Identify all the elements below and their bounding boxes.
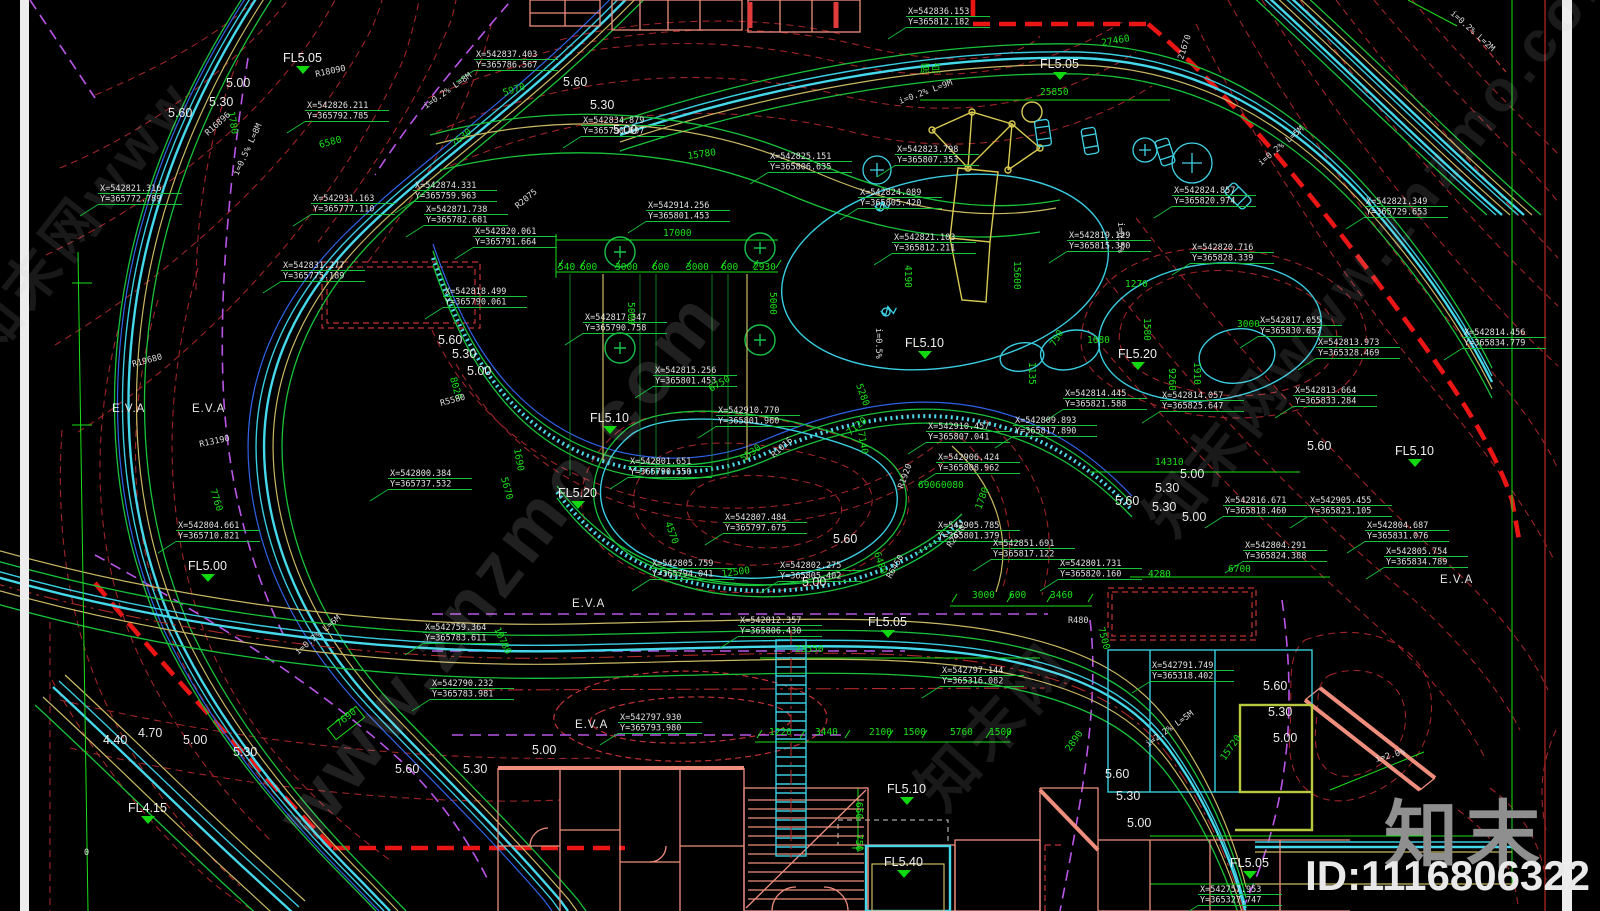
left-white-border — [20, 0, 29, 911]
coordinate-callout: X=542814.445Y=365821.588 — [1065, 389, 1126, 410]
elevation-label: 4.70 — [138, 726, 162, 740]
coordinate-callout: X=542825.151Y=365806.635 — [770, 152, 831, 173]
misc-label: 原点 — [920, 63, 941, 75]
dimension-text: 600 — [721, 262, 738, 273]
dimension-text: 5000 — [625, 302, 636, 325]
coordinate-callout: X=542820.061Y=365791.664 — [475, 227, 536, 248]
radius-slope-label: 21670 — [1176, 33, 1193, 60]
dimension-text: 27460 — [1101, 33, 1131, 49]
coordinate-callout: X=542759.364Y=365783.611 — [425, 623, 486, 644]
coordinate-callout: X=542914.256Y=365801.453 — [648, 201, 709, 222]
dimension-text: 3460 — [1050, 590, 1073, 601]
coordinate-callout: X=542813.664Y=365833.284 — [1295, 386, 1356, 407]
elevation-label: 5.30 — [463, 762, 487, 776]
dimension-text: 600 — [652, 262, 669, 273]
eva-label: E.V.A — [112, 403, 145, 415]
coordinate-callout: X=542816.671Y=365818.460 — [1225, 496, 1286, 517]
fl-triangle-marker — [881, 630, 895, 638]
coordinate-callout: X=542910.770Y=365801.960 — [718, 406, 779, 427]
fl-triangle-marker — [1408, 459, 1422, 467]
right-white-border — [1562, 0, 1572, 911]
dimension-text: 5000 — [767, 292, 778, 315]
coordinate-callout: X=542813.973Y=365328.469 — [1318, 338, 1379, 359]
eva-label: E.V.A — [572, 598, 605, 610]
coordinate-callout: X=542804.687Y=365831.076 — [1367, 521, 1428, 542]
coordinate-callout: X=542821.316Y=365772.789 — [100, 184, 161, 205]
coordinate-callout: X=542821.103Y=365812.211 — [894, 233, 955, 254]
dimension-text: 1680 — [1087, 335, 1110, 346]
elevation-label: 5.00 — [1127, 816, 1151, 830]
fl-triangle-marker — [201, 574, 215, 582]
coordinate-callout: X=542800.384Y=365737.532 — [390, 469, 451, 490]
coordinate-callout: X=542814.057Y=365825.647 — [1162, 391, 1223, 412]
dimension-text: 2100 — [869, 727, 892, 738]
elevation-label: 5.00 — [802, 575, 826, 589]
elevation-label: 5.00 — [613, 123, 637, 137]
coordinate-callout: X=542831.277Y=365775.189 — [283, 261, 344, 282]
coordinate-callout: X=542820.716Y=365828.339 — [1192, 243, 1253, 264]
spring-rider — [880, 305, 898, 317]
eva-label: E.V.A — [192, 403, 225, 415]
dimension-text: 1690 — [511, 448, 526, 473]
elevation-label: 5.30 — [1116, 789, 1140, 803]
elevation-label: 5.00 — [1180, 467, 1204, 481]
dimension-text: 15780 — [687, 147, 717, 162]
eva-label: E.V.A — [1440, 574, 1473, 586]
dimension-text: 750 — [853, 834, 864, 851]
radius-slope-label: R18090 — [315, 64, 347, 80]
dimension-text: 2890 — [1063, 728, 1085, 753]
misc-label: 0 — [84, 848, 89, 858]
watermark-layer: www.znzmo.com知末网www.znzmo.com知末网知末网www — [0, 0, 1600, 855]
site-watermark-id: ID:1116806322 — [1305, 852, 1590, 900]
fl-level-label: FL5.00 — [188, 559, 227, 573]
elevation-label: 5.60 — [563, 75, 587, 89]
elevation-label: 5.00 — [226, 76, 250, 90]
fl-triangle-marker — [918, 351, 932, 359]
fl-triangle-marker — [1131, 362, 1145, 370]
dimension-text: 3000 — [615, 262, 638, 273]
radius-slope-label: R5580 — [439, 393, 466, 409]
coordinate-callout: X=542851.691Y=365817.122 — [993, 539, 1054, 560]
fl-level-label: FL5.05 — [1040, 57, 1079, 71]
coordinate-callout: X=542817.347Y=365790.758 — [585, 313, 646, 334]
fl-triangle-marker — [900, 797, 914, 805]
elevation-label: 5.60 — [438, 333, 462, 347]
dimension-text: 7500 — [1095, 626, 1112, 651]
coordinate-callout: X=542826.211Y=365792.785 — [307, 101, 368, 122]
coordinate-callout: X=542757.953Y=365327.747 — [1200, 885, 1261, 906]
coordinate-callout: X=542821.349Y=365729.653 — [1366, 197, 1427, 218]
elevation-label: 5.30 — [1268, 705, 1292, 719]
coordinate-callout: X=542814.456Y=365834.779 — [1464, 328, 1525, 349]
elevation-label: 5.30 — [1155, 481, 1179, 495]
dimension-text: 2930 — [753, 262, 776, 273]
fl-level-label: FL4.15 — [128, 801, 167, 815]
coordinate-callout: X=542837.403Y=365786.567 — [476, 50, 537, 71]
fl-triangle-marker — [1243, 871, 1257, 879]
elevation-label: 5.60 — [395, 762, 419, 776]
elevation-label: 5.00 — [532, 743, 556, 757]
fl-level-label: FL5.10 — [887, 782, 926, 796]
dimension-text: 4570 — [662, 520, 680, 546]
dimension-text: 3000 — [972, 590, 995, 601]
fl-level-label: FL5.05 — [1230, 856, 1269, 870]
cad-canvas: www.znzmo.com知末网www.znzmo.com知末网知末网www X… — [0, 0, 1600, 911]
coordinate-callout: X=542824.857Y=365820.974 — [1174, 186, 1235, 207]
radius-slope-label: R19680 — [131, 352, 163, 370]
dimension-text: 600 — [580, 262, 597, 273]
coordinate-callout: X=542823.798Y=365807.353 — [897, 145, 958, 166]
dimension-text: 1580 — [1141, 318, 1152, 341]
dimension-text: 7140 — [855, 431, 870, 456]
dimension-text: 6580 — [318, 134, 343, 151]
eva-label: E.V.A — [575, 719, 608, 731]
elevation-label: 5.60 — [1115, 494, 1139, 508]
elevation-label: 5.00 — [1273, 731, 1297, 745]
radius-slope-label: R480 — [1068, 616, 1088, 626]
dimension-text: 3000 — [1237, 319, 1260, 330]
radius-slope-label: R2075 — [514, 187, 540, 211]
fl-level-label: FL5.40 — [884, 855, 923, 869]
dimension-text: 1135 — [1026, 362, 1037, 385]
elevation-label: 5.00 — [183, 733, 207, 747]
coordinate-callout: X=542931.163Y=365777.110 — [313, 194, 374, 215]
dimension-text: 23550 — [795, 644, 824, 655]
coordinate-callout: X=542824.089Y=365805.420 — [860, 188, 921, 209]
fl-level-label: FL5.05 — [283, 51, 322, 65]
fl-level-label: FL5.10 — [905, 336, 944, 350]
dimension-text: 1500 — [903, 727, 926, 738]
dimension-text: 17000 — [663, 228, 692, 239]
misc-labels: 原点0 — [84, 63, 941, 858]
elevation-label: 4.40 — [103, 733, 127, 747]
elevation-label: 5.30 — [1152, 500, 1176, 514]
coordinate-callout: X=542836.153Y=365812.182 — [908, 7, 969, 28]
coordinate-callout: X=542804.661Y=365710.821 — [178, 521, 239, 542]
elevation-label: 5.60 — [1307, 439, 1331, 453]
dimension-text: 5280 — [853, 382, 871, 408]
coordinate-callout: X=542809.893Y=365817.890 — [1015, 416, 1076, 437]
coordinate-callout: X=542910.457Y=365807.041 — [928, 422, 989, 443]
dimension-text: 3440 — [815, 727, 838, 738]
coordinate-callout: X=542874.331Y=365759.963 — [415, 181, 476, 202]
radius-slope-label: i=0.5% — [1115, 222, 1125, 253]
fl-triangle-marker — [296, 66, 310, 74]
dimension-text: 4190 — [902, 265, 913, 288]
elevation-label: 5.60 — [168, 106, 192, 120]
dimension-text: 7760 — [207, 488, 225, 513]
coordinate-callout: X=542905.785Y=365801.379 — [938, 521, 999, 542]
fl-level-label: FL5.20 — [1118, 347, 1157, 361]
fl-level-label: FL5.20 — [558, 486, 597, 500]
radius-slope-label: i=2.0% — [1374, 747, 1406, 765]
elevation-label: 5.30 — [209, 95, 233, 109]
dimension-text: 6700 — [1228, 564, 1251, 575]
coordinate-callout: X=542818.499Y=365790.061 — [445, 287, 506, 308]
coordinate-callout: X=542797.144Y=365316.082 — [942, 666, 1003, 687]
dimension-text: 600 — [1009, 590, 1026, 601]
fl-level-label: FL5.05 — [868, 615, 907, 629]
fl-triangle-marker — [141, 816, 155, 824]
elevation-label: 5.30 — [590, 98, 614, 112]
elevation-label: 5.30 — [233, 745, 257, 759]
dimension-text: 25850 — [1040, 87, 1069, 98]
coordinate-callout: X=542805.754Y=365834.789 — [1386, 547, 1447, 568]
dimension-text: 650 — [853, 802, 864, 819]
coordinate-callout: X=542801.731Y=365820.160 — [1060, 559, 1121, 580]
fl-triangle-marker — [897, 870, 911, 878]
dimension-text: 1270 — [1125, 279, 1148, 290]
coordinate-callout: X=542871.738Y=365782.681 — [426, 205, 487, 226]
coordinate-callout: X=542790.232Y=365783.981 — [432, 679, 493, 700]
coordinate-callout: X=542815.256Y=365801.453 — [655, 366, 716, 387]
coordinate-callout: X=542801.651Y=365790.550 — [630, 457, 691, 478]
dimension-text: 4280 — [1148, 569, 1171, 580]
dimension-text: 9260 — [1166, 368, 1177, 391]
coordinate-callout: X=542812.357Y=365806.430 — [740, 616, 801, 637]
fl-triangle-marker — [1053, 72, 1067, 80]
coordinate-callout: X=542797.930Y=365793.980 — [620, 713, 681, 734]
dimension-text: 69060080 — [918, 480, 964, 491]
radius-slope-label: R1920 — [896, 463, 914, 490]
coordinate-callout: X=542805.759Y=365794.041 — [652, 559, 713, 580]
elevation-label: 5.60 — [1263, 679, 1287, 693]
coordinate-callout: X=542807.484Y=365797.675 — [725, 513, 786, 534]
dimension-text: 1910 — [1191, 362, 1202, 385]
coordinate-callout: X=542817.055Y=365830.657 — [1260, 316, 1321, 337]
elevation-label: 5.60 — [1105, 767, 1129, 781]
dimension-text: 5760 — [950, 727, 973, 738]
cad-drawing-viewport: www.znzmo.com知末网www.znzmo.com知末网知末网www X… — [0, 0, 1600, 911]
elevation-label: 5.30 — [452, 347, 476, 361]
elevation-labels: 5.605.305.005.605.305.005.605.305.005.60… — [103, 75, 1331, 830]
dimension-text: 15600 — [1011, 261, 1022, 290]
elevation-label: 5.60 — [833, 532, 857, 546]
coordinate-callout: X=542791.749Y=365318.402 — [1152, 661, 1213, 682]
elevation-label: 5.00 — [467, 364, 491, 378]
coordinate-callout: X=542905.455Y=365823.105 — [1310, 496, 1371, 517]
dimension-text: 1220 — [769, 727, 792, 738]
coordinate-callout: X=542906.424Y=365808.962 — [938, 453, 999, 474]
dimension-text: 750 — [1048, 328, 1066, 349]
fl-level-label: FL5.10 — [590, 411, 629, 425]
radius-slope-label: i=0.2% L=2M — [1448, 9, 1497, 54]
radius-slope-label: i=0.5% — [873, 328, 883, 359]
elevation-label: 5.00 — [1182, 510, 1206, 524]
fl-level-label: FL5.10 — [1395, 444, 1434, 458]
dimension-text: 540 — [558, 262, 575, 273]
radius-slope-label: R13190 — [199, 434, 231, 450]
coordinate-callout: X=542804.291Y=365824.388 — [1245, 541, 1306, 562]
dimension-text: 3000 — [686, 262, 709, 273]
dimension-text: 1500 — [989, 727, 1012, 738]
dimension-text: 1780 — [973, 486, 991, 512]
